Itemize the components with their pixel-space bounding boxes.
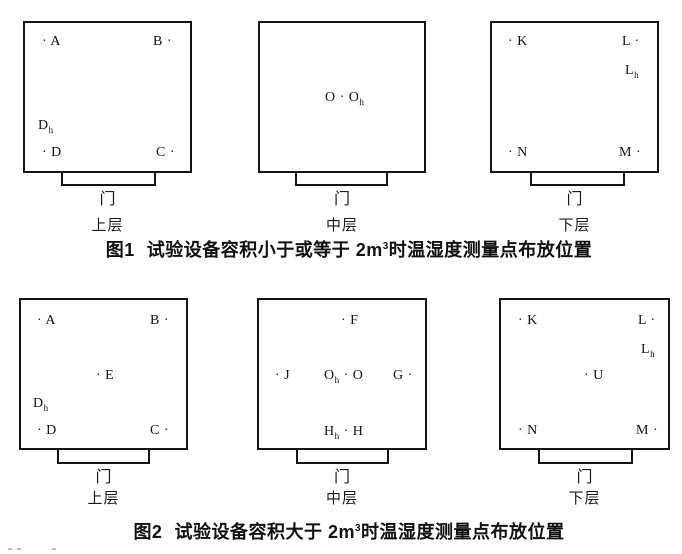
point-figure-2-Dh: Dh <box>33 397 49 411</box>
point-figure-2-C: C · <box>150 424 169 438</box>
point-figure-1-Lh: Lh <box>625 64 639 78</box>
door-label-figure-2-middle-layer: 门 <box>334 470 350 486</box>
figure1-number: 图1 <box>106 240 135 260</box>
point-figure-1-B: B · <box>153 35 172 49</box>
layer-label-figure-2-middle-layer: 中层 <box>326 491 358 506</box>
layer-label-figure-1-lower-layer: 下层 <box>558 218 590 233</box>
point-figure-2-N: · N <box>518 424 538 438</box>
layer-label-figure-1-middle-layer: 中层 <box>326 218 358 233</box>
point-figure-2-M: M · <box>636 424 658 438</box>
layer-label-figure-2-upper-layer: 上层 <box>87 491 119 506</box>
scan-artifact <box>8 548 12 550</box>
door-outline-figure-1-middle-layer <box>295 173 388 186</box>
door-outline-figure-2-lower-layer <box>538 450 633 464</box>
point-figure-2-Oh-O: Oh · O <box>324 369 363 383</box>
scan-artifact <box>52 548 56 550</box>
point-figure-2-A: · A <box>37 314 56 328</box>
door-label-figure-1-upper-layer: 门 <box>99 192 115 208</box>
point-figure-2-L: L · <box>638 314 656 328</box>
figure2-caption-text-pre: 试验设备容积大于 2m <box>174 522 355 542</box>
door-label-figure-2-upper-layer: 门 <box>95 470 111 486</box>
point-figure-2-Lh: Lh <box>641 343 655 357</box>
layer-label-figure-1-upper-layer: 上层 <box>91 218 123 233</box>
point-figure-1-L: L · <box>622 35 640 49</box>
figure1-caption-text-post: 时温湿度测量点布放位置 <box>389 240 593 260</box>
subscript-h: h <box>49 125 54 135</box>
door-outline-figure-1-upper-layer <box>61 173 156 186</box>
point-figure-2-K: · K <box>518 314 538 328</box>
figure2-caption: 图2试验设备容积大于 2m3时温湿度测量点布放位置 <box>8 522 682 544</box>
document-page: 门上层· AB ·Dh· DC ·门中层O · Oh门下层· KL ·Lh· N… <box>0 0 682 554</box>
point-figure-2-B: B · <box>150 314 169 328</box>
point-figure-2-J: · J <box>275 369 290 383</box>
point-figure-2-E: · E <box>96 369 114 383</box>
door-outline-figure-1-lower-layer <box>530 173 625 186</box>
door-outline-figure-2-middle-layer <box>296 450 389 464</box>
door-outline-figure-2-upper-layer <box>57 450 150 464</box>
point-figure-2-D: · D <box>37 424 57 438</box>
layer-label-figure-2-lower-layer: 下层 <box>568 491 600 506</box>
point-figure-2-G: G · <box>393 369 413 383</box>
door-label-figure-1-middle-layer: 门 <box>334 192 350 208</box>
subscript-h: h <box>44 403 49 413</box>
point-figure-1-N: · N <box>508 146 528 160</box>
point-figure-1-D: · D <box>42 146 62 160</box>
door-label-figure-2-lower-layer: 门 <box>576 470 592 486</box>
subscript-h: h <box>650 349 655 359</box>
subscript-h: h <box>335 431 340 441</box>
point-figure-2-F: · F <box>341 314 358 328</box>
point-figure-1-Dh: Dh <box>38 119 54 133</box>
point-figure-1-C: C · <box>156 146 175 160</box>
point-figure-2-Hh-H: Hh · H <box>324 425 363 439</box>
scan-artifact <box>17 548 21 550</box>
figure1-caption-text-pre: 试验设备容积小于或等于 2m <box>147 240 383 260</box>
subscript-h: h <box>359 97 364 107</box>
figure1-caption: 图1试验设备容积小于或等于 2m3时温湿度测量点布放位置 <box>8 240 682 262</box>
figure2-caption-text-post: 时温湿度测量点布放位置 <box>361 522 565 542</box>
point-figure-1-K: · K <box>508 35 528 49</box>
point-figure-2-U: · U <box>584 369 604 383</box>
door-label-figure-1-lower-layer: 门 <box>566 192 582 208</box>
figure2-number: 图2 <box>133 522 162 542</box>
point-figure-1-M: M · <box>619 146 641 160</box>
point-figure-1-O-Oh: O · Oh <box>325 91 364 105</box>
point-figure-1-A: · A <box>42 35 61 49</box>
subscript-h: h <box>335 375 340 385</box>
subscript-h: h <box>634 70 639 80</box>
